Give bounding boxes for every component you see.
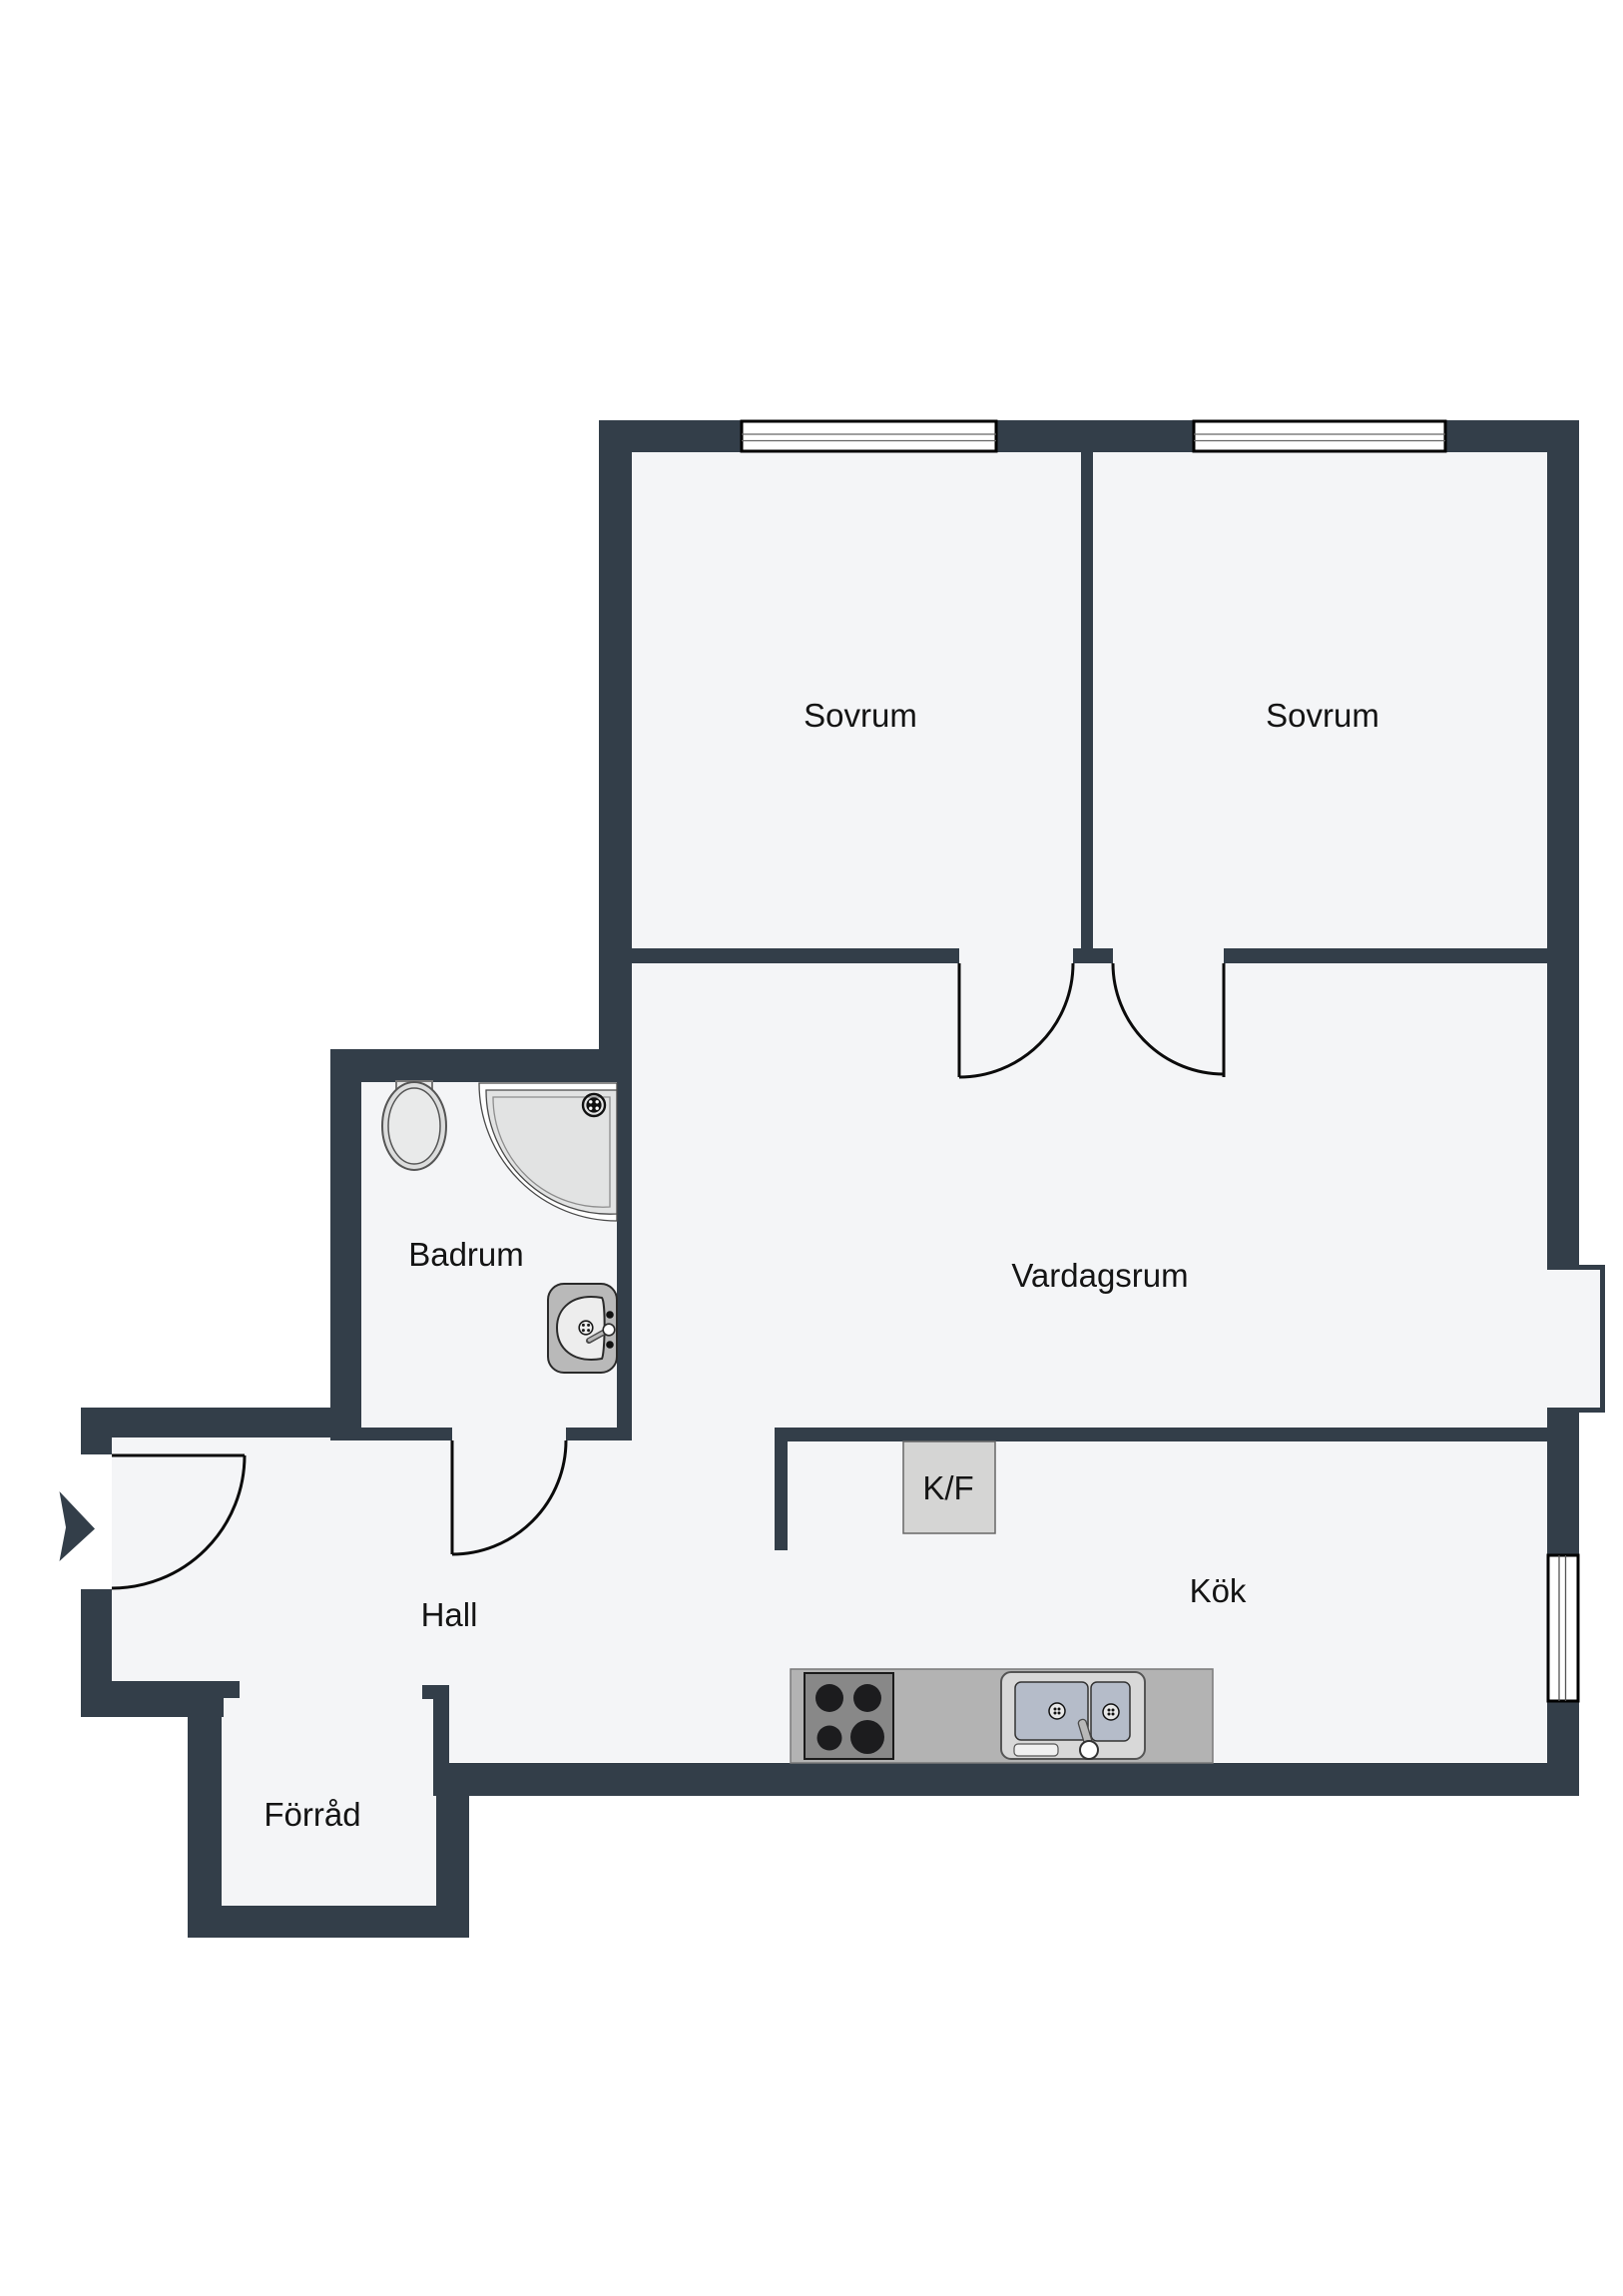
svg-text:Vardagsrum: Vardagsrum — [1011, 1257, 1188, 1294]
svg-text:Hall: Hall — [421, 1596, 478, 1633]
svg-text:Sovrum: Sovrum — [804, 697, 917, 734]
svg-text:Kök: Kök — [1190, 1572, 1247, 1609]
svg-text:K/F: K/F — [922, 1469, 973, 1506]
svg-text:Förråd: Förråd — [264, 1796, 360, 1833]
svg-text:Badrum: Badrum — [408, 1236, 524, 1273]
svg-text:Sovrum: Sovrum — [1266, 697, 1379, 734]
